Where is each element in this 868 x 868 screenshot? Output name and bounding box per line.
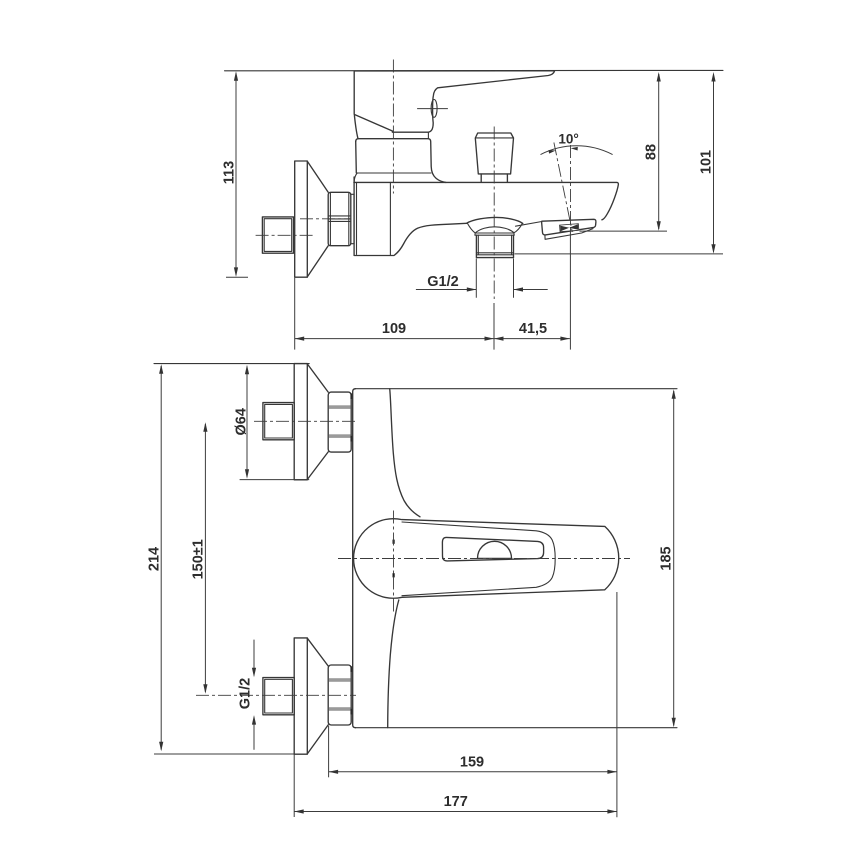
- svg-text:214: 214: [147, 547, 163, 571]
- svg-text:113: 113: [222, 161, 238, 184]
- svg-text:Ø64: Ø64: [234, 408, 250, 435]
- svg-text:10°: 10°: [558, 132, 578, 147]
- svg-text:88: 88: [644, 144, 660, 160]
- svg-text:G1/2: G1/2: [237, 678, 253, 709]
- svg-text:177: 177: [444, 794, 468, 810]
- svg-text:185: 185: [658, 546, 674, 570]
- svg-text:41,5: 41,5: [519, 321, 547, 337]
- svg-text:159: 159: [460, 754, 484, 770]
- svg-text:109: 109: [382, 321, 406, 337]
- svg-text:G1/2: G1/2: [427, 274, 458, 290]
- svg-text:101: 101: [698, 150, 714, 174]
- svg-text:150±1: 150±1: [191, 539, 207, 579]
